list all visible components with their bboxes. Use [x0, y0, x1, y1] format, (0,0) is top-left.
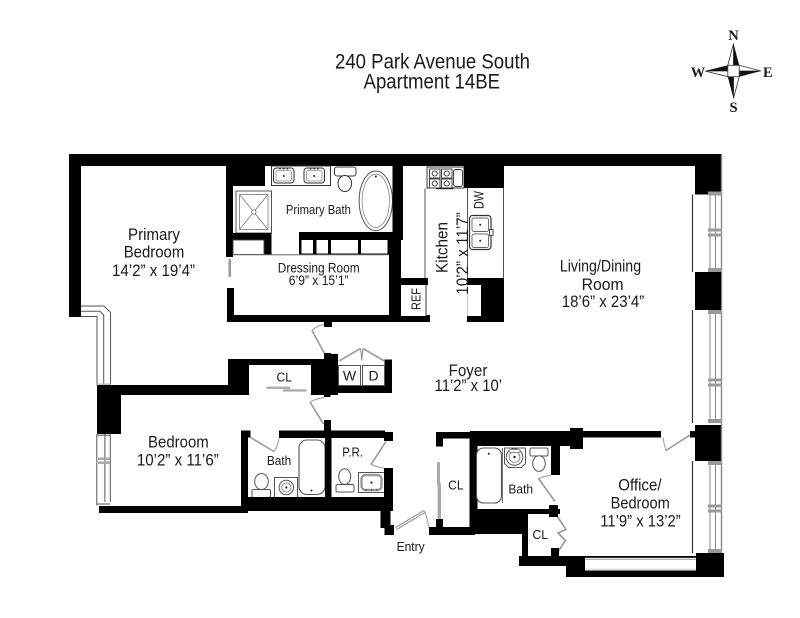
svg-text:P.R.: P.R. [342, 445, 363, 460]
svg-text:REF: REF [409, 288, 424, 310]
svg-text:DW: DW [472, 191, 487, 209]
svg-text:Primary Bath: Primary Bath [286, 202, 351, 217]
svg-text:Bedroom: Bedroom [124, 243, 185, 262]
svg-text:18’6” x 23’4”: 18’6” x 23’4” [562, 292, 645, 311]
svg-text:Office/: Office/ [618, 476, 662, 495]
svg-text:CL: CL [448, 477, 464, 492]
svg-text:10’2” x 11’7”: 10’2” x 11’7” [453, 212, 472, 295]
svg-text:Bath: Bath [508, 482, 533, 497]
svg-text:10’2” x 11’6”: 10’2” x 11’6” [137, 451, 219, 470]
svg-text:Bedroom: Bedroom [148, 432, 209, 451]
svg-text:W: W [343, 368, 357, 384]
svg-text:Entry: Entry [397, 539, 425, 554]
svg-text:N: N [728, 28, 739, 44]
svg-text:W: W [691, 65, 706, 81]
svg-text:D: D [368, 368, 378, 384]
svg-text:S: S [729, 100, 737, 116]
svg-text:11’2” x 10’: 11’2” x 10’ [435, 376, 503, 395]
svg-text:Bath: Bath [267, 453, 291, 468]
svg-text:Bedroom: Bedroom [611, 493, 670, 512]
svg-text:Primary: Primary [128, 225, 180, 244]
svg-text:6’9” x 15’1”: 6’9” x 15’1” [289, 273, 349, 288]
svg-text:Apartment 14BE: Apartment 14BE [364, 71, 501, 94]
svg-text:CL: CL [276, 370, 292, 385]
svg-text:E: E [763, 65, 773, 81]
svg-text:CL: CL [532, 527, 548, 542]
svg-text:14’2” x 19’4”: 14’2” x 19’4” [112, 261, 195, 280]
svg-text:Living/Dining: Living/Dining [560, 257, 641, 276]
svg-text:Kitchen: Kitchen [432, 222, 451, 273]
svg-text:11’9” x 13’2”: 11’9” x 13’2” [600, 512, 681, 531]
